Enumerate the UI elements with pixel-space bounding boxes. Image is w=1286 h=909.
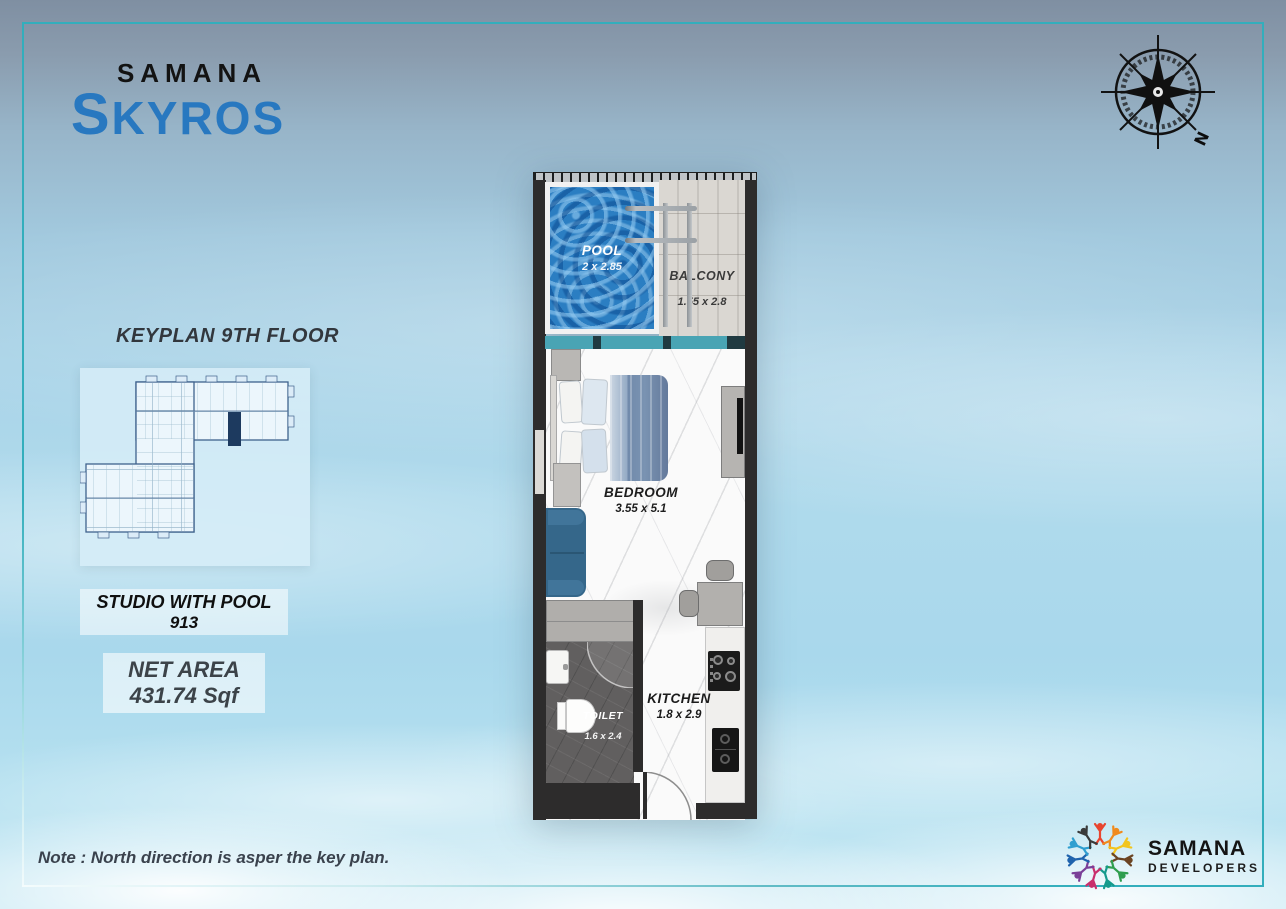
compass-icon: N	[1098, 32, 1218, 152]
bedroom-dims: 3.55 x 5.1	[581, 502, 701, 517]
keyplan-panel	[80, 368, 310, 566]
floor-plan: BALCONY 1.55 x 2.8 POOL 2 x 2.85	[533, 172, 757, 820]
pillow	[581, 428, 608, 473]
entry-door-swing	[643, 772, 693, 820]
balcony-label: BALCONY 1.55 x 2.8	[659, 267, 745, 308]
keyplan-title: KEYPLAN 9TH FLOOR	[116, 326, 339, 346]
kitchen-dims: 1.8 x 2.9	[631, 709, 727, 723]
brand-product: SKYROS	[60, 87, 296, 142]
pool-ladder-rail	[625, 206, 697, 211]
window-post	[663, 336, 671, 349]
pool-name: POOL	[582, 242, 622, 260]
kitchen-sink	[712, 728, 739, 772]
blanket	[610, 375, 668, 481]
net-area-value: 431.74 Sqf	[130, 683, 239, 709]
unit-type: STUDIO WITH POOL	[97, 592, 272, 613]
pillow	[581, 378, 608, 425]
faucet	[563, 664, 568, 670]
sofa	[546, 508, 586, 597]
bedroom-name: BEDROOM	[581, 484, 701, 502]
compass-north-label: N	[1190, 128, 1213, 148]
pool-dims: 2 x 2.85	[582, 260, 622, 274]
frame-top	[22, 22, 1264, 24]
kitchen-name: KITCHEN	[631, 690, 727, 709]
burner	[727, 657, 735, 665]
desk	[697, 582, 743, 626]
chair	[679, 590, 699, 617]
burner	[725, 671, 736, 682]
sofa-arm	[548, 580, 584, 595]
window-band	[545, 336, 745, 349]
toilet-tank	[557, 702, 566, 730]
wall-niche	[535, 430, 544, 494]
sink-basin	[720, 754, 730, 764]
window-post	[593, 336, 601, 349]
keyplan-drawing	[80, 368, 310, 566]
frame-right	[1262, 22, 1264, 887]
net-area-label: NET AREA	[128, 657, 240, 683]
wardrobe-cabinet	[546, 600, 634, 642]
developer-people-icon	[1060, 816, 1140, 896]
wall-bottom	[696, 803, 757, 819]
pillow	[559, 380, 584, 423]
sink-divider	[715, 749, 736, 750]
balcony-dims: 1.55 x 2.8	[659, 297, 745, 308]
chair	[706, 560, 734, 581]
balcony-area	[659, 180, 745, 336]
sofa-arm	[548, 510, 584, 525]
unit-type-box: STUDIO WITH POOL 913	[80, 589, 288, 635]
frame-left	[22, 22, 24, 887]
burner	[713, 655, 723, 665]
developer-wordmark: SAMANA DEVELOPERS	[1148, 838, 1260, 874]
bathroom-sink	[546, 650, 569, 684]
pool-ladder-post	[687, 203, 692, 327]
kitchen-label: KITCHEN 1.8 x 2.9	[631, 690, 727, 723]
pool-area: POOL 2 x 2.85	[545, 182, 659, 334]
bedroom-label: BEDROOM 3.55 x 5.1	[581, 484, 701, 516]
keyplan-highlighted-unit	[228, 412, 241, 446]
tv	[737, 398, 743, 454]
brochure-page: SAMANA SKYROS N KEYPLAN 9TH FLOOR	[0, 0, 1286, 909]
sink-basin	[720, 734, 730, 744]
window-post	[727, 336, 745, 349]
net-area-box: NET AREA 431.74 Sqf	[103, 653, 265, 713]
toilet-dims: 1.6 x 2.4	[573, 732, 633, 742]
north-note: Note : North direction is asper the key …	[38, 849, 389, 866]
stove-knobs	[710, 658, 713, 684]
balcony-name: BALCONY	[669, 269, 734, 283]
pool-ladder-post	[663, 203, 668, 327]
burner	[713, 672, 721, 680]
cabinet-seam	[547, 621, 633, 622]
developer-logo: SAMANA DEVELOPERS	[1060, 816, 1260, 896]
bedside-bench	[553, 463, 581, 507]
developer-tagline: DEVELOPERS	[1148, 862, 1260, 874]
sofa-seam	[550, 552, 584, 554]
toilet-name: TOILET	[583, 710, 623, 722]
pool-ladder-rail	[625, 238, 697, 243]
wall-right	[745, 180, 757, 818]
developer-name: SAMANA	[1148, 838, 1260, 859]
wall-bottom	[533, 783, 640, 819]
brand-logo: SAMANA SKYROS	[60, 58, 296, 142]
toilet-door-swing	[587, 642, 633, 688]
toilet-label: TOILET 1.6 x 2.4	[573, 706, 633, 742]
wall-toilet-kitchen	[633, 600, 643, 772]
unit-number: 913	[170, 613, 198, 633]
